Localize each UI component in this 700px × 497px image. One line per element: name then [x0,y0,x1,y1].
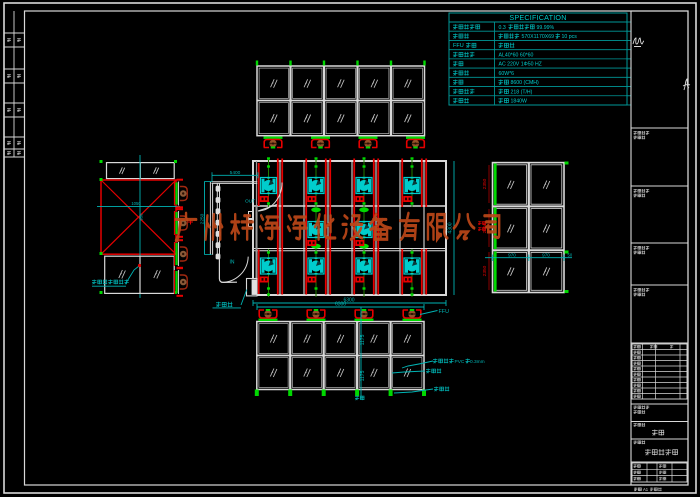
svg-text:AC 220V 1Φ50 HZ: AC 220V 1Φ50 HZ [499,62,542,68]
svg-text:5400: 5400 [230,170,241,176]
svg-text:IN: IN [230,260,235,266]
svg-text:FFU: FFU [453,43,464,49]
svg-text:99.99%: 99.99% [537,25,555,31]
svg-text:1175: 1175 [360,334,366,345]
svg-text:60W*6: 60W*6 [499,71,515,77]
svg-text:970: 970 [508,252,516,257]
svg-text:1050: 1050 [131,201,141,206]
svg-text:AL40*60 60*60: AL40*60 60*60 [499,52,534,58]
svg-text:OUT: OUT [245,198,255,204]
svg-text:2350: 2350 [482,265,488,276]
svg-text:970: 970 [542,252,550,257]
svg-text:4300: 4300 [448,222,454,233]
svg-text:6300: 6300 [335,302,346,308]
svg-text:2350: 2350 [482,178,488,189]
svg-text:570X1170X69: 570X1170X69 [522,34,555,40]
svg-text:FFU: FFU [439,309,450,315]
svg-text:0.3: 0.3 [499,25,506,31]
svg-text:218 (T/H): 218 (T/H) [511,89,533,95]
svg-text:SPECIFICATION: SPECIFICATION [509,13,566,22]
svg-text:A1: A1 [643,487,649,492]
svg-text:0.3mm: 0.3mm [470,359,485,365]
svg-text:1175: 1175 [360,370,366,381]
svg-text:2250: 2250 [200,213,206,224]
svg-text:1840W: 1840W [511,99,528,105]
svg-text:950: 950 [139,213,144,221]
svg-text:10 pcs: 10 pcs [562,34,578,40]
svg-text:PVC: PVC [455,359,465,365]
svg-text:8600 (CMH): 8600 (CMH) [511,80,540,86]
